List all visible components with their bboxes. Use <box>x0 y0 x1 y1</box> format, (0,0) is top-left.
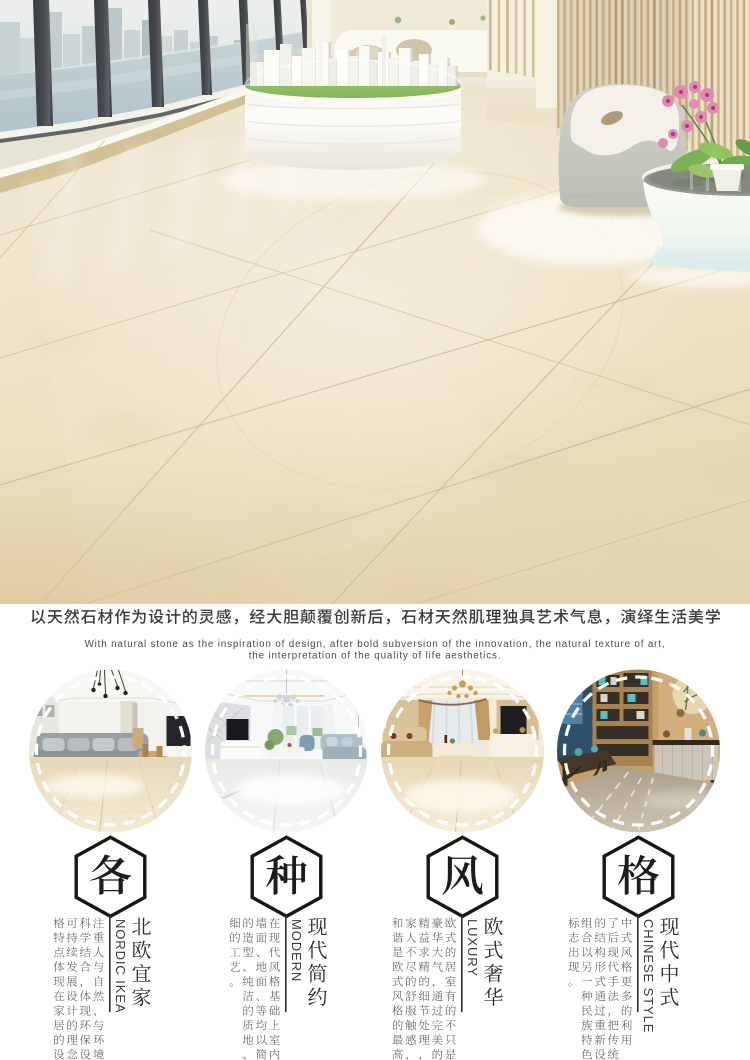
svg-text:LUXURY: LUXURY <box>465 919 480 977</box>
svg-text:With natural stone as the insp: With natural stone as the inspiration of… <box>85 639 666 650</box>
svg-text:CHINESE STYLE: CHINESE STYLE <box>641 919 656 1033</box>
svg-text:MODERN: MODERN <box>289 919 304 982</box>
svg-text:the interpretation of the qual: the interpretation of the quality of lif… <box>249 651 502 662</box>
svg-text:NORDIC IKEA: NORDIC IKEA <box>113 919 128 1013</box>
